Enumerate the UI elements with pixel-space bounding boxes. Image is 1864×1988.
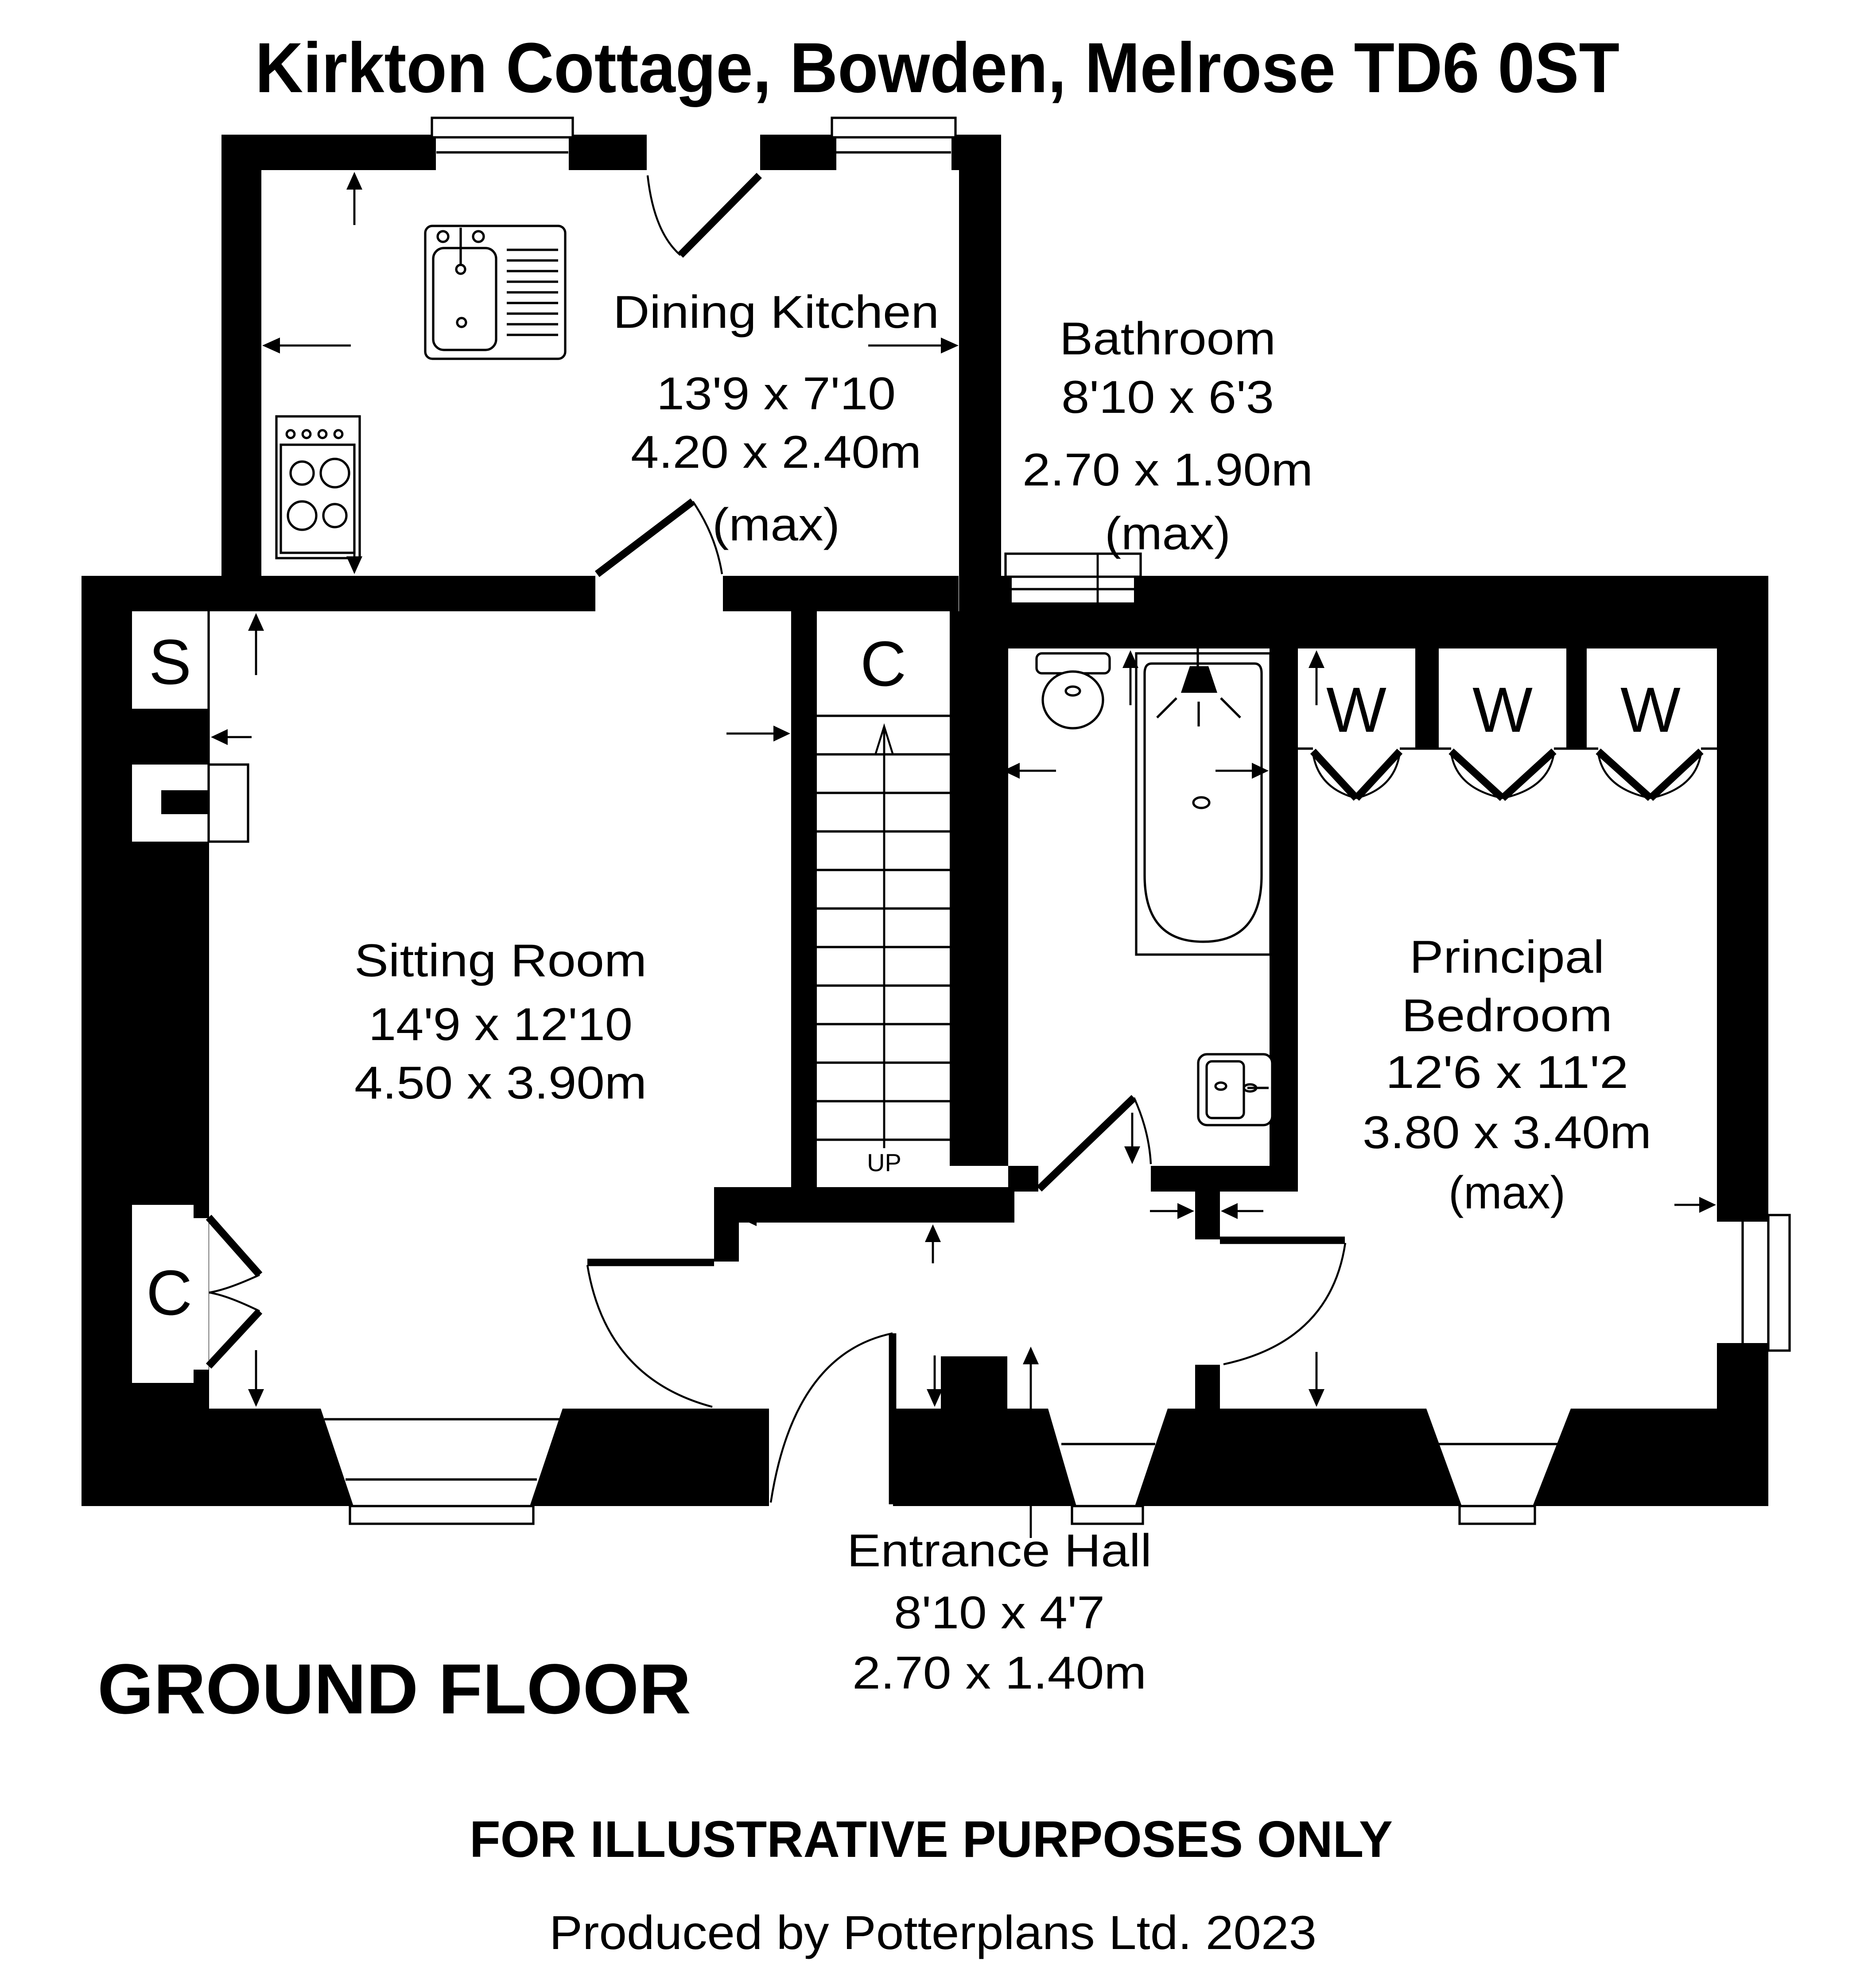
stove-fixture (276, 416, 360, 558)
room-label-sitting-room: Sitting Room 14'9 x 12'10 4.50 x 3.90m (354, 935, 647, 1109)
credit-text: Produced by Potterplans Ltd. 2023 (549, 1906, 1316, 1959)
kitchen-top-door (648, 175, 759, 255)
disclaimer-text: FOR ILLUSTRATIVE PURPOSES ONLY (470, 1810, 1393, 1868)
hall-window (1061, 1444, 1155, 1524)
front-door (771, 1333, 893, 1504)
dining-kitchen-qualifier: (max) (712, 499, 840, 551)
sitting-room-imperial: 14'9 x 12'10 (369, 999, 633, 1050)
kitchen-bottom-door (597, 501, 722, 574)
staircase: UP (817, 716, 950, 1176)
dining-kitchen-imperial: 13'9 x 7'10 (656, 368, 896, 419)
wardrobe-label-2: W (1472, 674, 1533, 745)
closet-label-stairs: C (860, 628, 906, 699)
room-label-principal-bedroom: Principal Bedroom 12'6 x 11'2 3.80 x 3.4… (1363, 932, 1651, 1219)
bathroom-qualifier: (max) (1105, 508, 1231, 559)
sitting-room-metric: 4.50 x 3.90m (354, 1057, 647, 1109)
floor-title: GROUND FLOOR (97, 1649, 691, 1728)
floor-plan-page: Kirkton Cottage, Bowden, Melrose TD6 0ST (0, 0, 1864, 1988)
wardrobe-doors (1298, 749, 1717, 798)
bedroom-door (1220, 1240, 1345, 1364)
sitting-room-name: Sitting Room (354, 935, 647, 986)
wardrobe-label-3: W (1620, 674, 1681, 745)
bedroom-name-line1: Principal (1410, 932, 1604, 983)
store-label: S (149, 626, 191, 698)
bedroom-name-line2: Bedroom (1402, 990, 1612, 1041)
floor-plan-canvas: Kirkton Cottage, Bowden, Melrose TD6 0ST (0, 0, 1864, 1988)
sitting-room-door (587, 1262, 714, 1407)
room-label-bathroom: Bathroom 8'10 x 6'3 2.70 x 1.90m (max) (1022, 313, 1313, 559)
fireplace-hearth (209, 765, 248, 842)
bedroom-side-window (1743, 1215, 1790, 1351)
toilet-fixture (1037, 653, 1110, 728)
sitting-room-bay-window (324, 1419, 560, 1524)
bathroom-door (1039, 1098, 1151, 1189)
kitchen-sink-fixture (425, 226, 565, 359)
stairs-up-label: UP (867, 1149, 901, 1176)
entrance-hall-name: Entrance Hall (847, 1525, 1152, 1576)
entrance-hall-imperial: 8'10 x 4'7 (894, 1587, 1105, 1639)
kitchen-window-right (832, 118, 955, 152)
bathroom-imperial: 8'10 x 6'3 (1061, 372, 1274, 423)
walls (82, 135, 1768, 1506)
plan-title: Kirkton Cottage, Bowden, Melrose TD6 0ST (255, 28, 1619, 107)
washbasin-fixture (1198, 1054, 1272, 1125)
kitchen-window-left (432, 118, 573, 152)
bedroom-metric: 3.80 x 3.40m (1363, 1107, 1651, 1158)
bathroom-metric: 2.70 x 1.90m (1022, 444, 1313, 496)
bedroom-bottom-window (1439, 1444, 1557, 1524)
room-label-dining-kitchen: Dining Kitchen 13'9 x 7'10 4.20 x 2.40m … (613, 287, 939, 551)
bathroom-name: Bathroom (1060, 313, 1276, 365)
room-label-entrance-hall: Entrance Hall 8'10 x 4'7 2.70 x 1.40m (847, 1525, 1152, 1699)
bedroom-imperial: 12'6 x 11'2 (1386, 1047, 1628, 1098)
dining-kitchen-name: Dining Kitchen (613, 287, 939, 338)
closet-label-sitting-room: C (146, 1257, 192, 1328)
wardrobe-label-1: W (1326, 674, 1386, 745)
closet-double-doors (209, 1217, 260, 1366)
bathtub-fixture (1136, 648, 1270, 955)
dining-kitchen-metric: 4.20 x 2.40m (631, 427, 921, 478)
bedroom-qualifier: (max) (1448, 1167, 1565, 1219)
entrance-hall-metric: 2.70 x 1.40m (852, 1647, 1146, 1699)
fireplace-insert (161, 790, 209, 814)
